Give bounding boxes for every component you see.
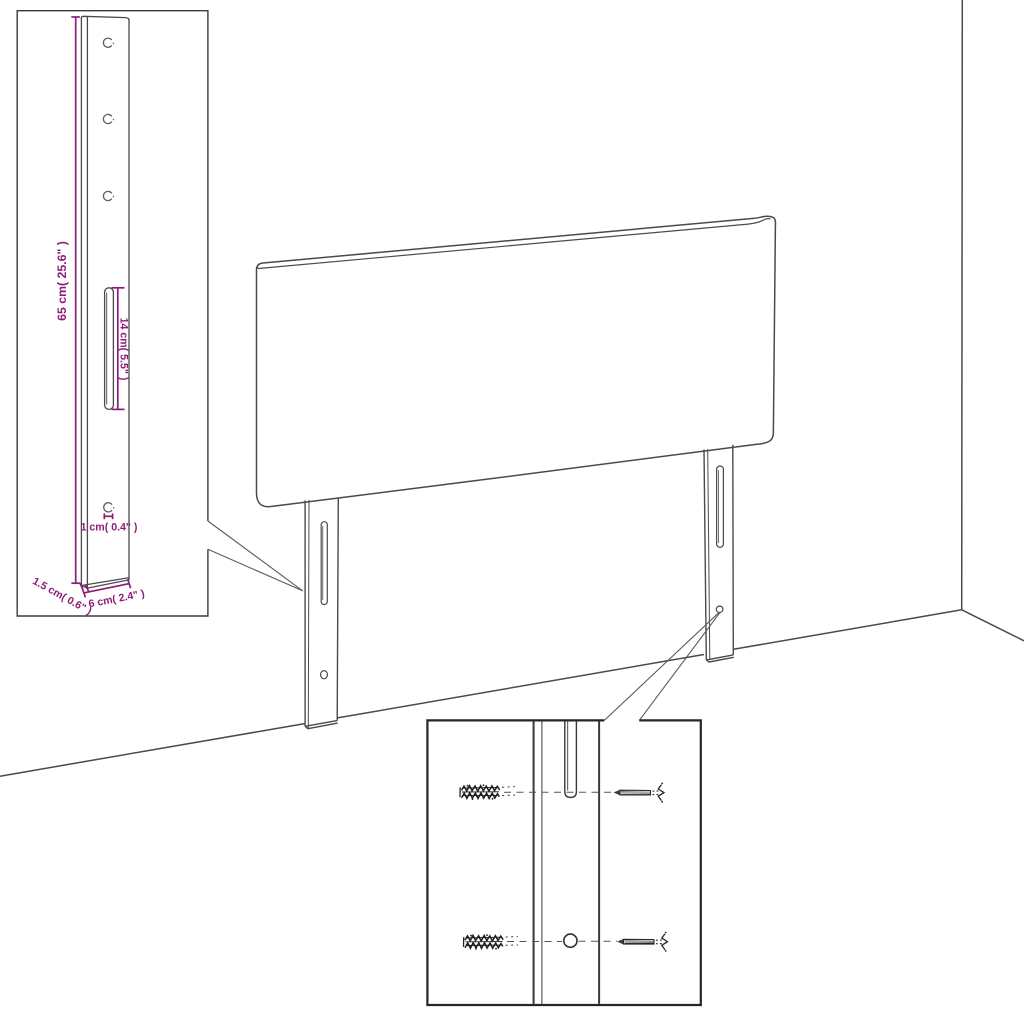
svg-text:1 cm( 0.4" ): 1 cm( 0.4" ): [81, 522, 138, 534]
svg-text:14 cm( 5.5" ): 14 cm( 5.5" ): [117, 318, 129, 381]
svg-text:65 cm( 25.6" ): 65 cm( 25.6" ): [55, 241, 69, 321]
